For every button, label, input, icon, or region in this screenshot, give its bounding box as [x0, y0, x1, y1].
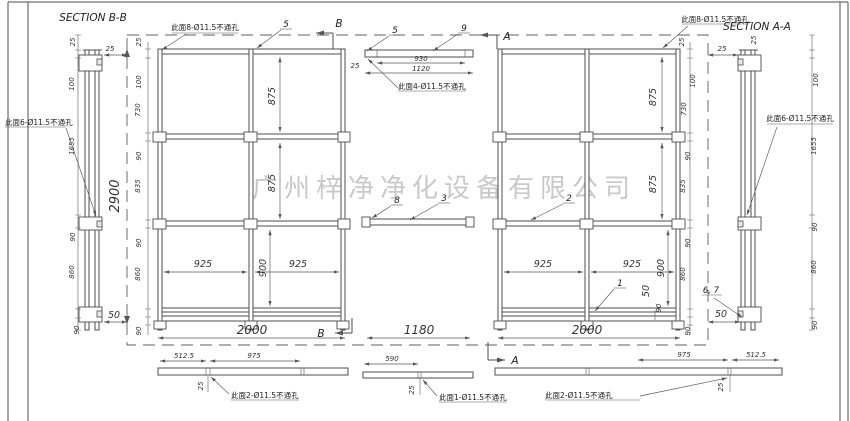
dim-strip-right-25: 25: [717, 382, 725, 391]
dim-2900-arrows: [124, 49, 130, 324]
dim-rf-100: 100: [689, 74, 697, 88]
dim-rf-row2: 875: [648, 175, 659, 193]
cad-drawing-sheet: 广州梓净净化设备有限公司 SECTION B-B 25 25 100 1655 …: [0, 0, 850, 421]
foot-block: [337, 321, 349, 329]
foot-block: [154, 321, 166, 329]
leader-label-bottomright-2holes: 此面2-Ø11.5不通孔: [545, 390, 613, 400]
mark-a-top: A: [502, 31, 510, 43]
dim-lf-25t: 25: [135, 37, 143, 46]
leader-line-topleft-8holes: [162, 34, 186, 50]
callout-9: 9: [461, 24, 467, 34]
joint-block: [153, 219, 166, 229]
dim-rf-25h: 25: [718, 45, 727, 53]
callout-3: 3: [441, 194, 447, 204]
dim-rf-width: 2000: [572, 323, 603, 337]
dim-lf-width: 2000: [237, 323, 268, 337]
callout-8: 8: [394, 196, 400, 206]
dim-sec-b-25-horiz: 25: [106, 45, 115, 53]
dim-strip-mid-25: 25: [408, 385, 416, 394]
joint-block: [244, 219, 257, 229]
bottom-strip-right: [495, 368, 782, 375]
dim-lf-835: 835: [134, 179, 142, 193]
dim-sec-b-90b: 90: [73, 325, 81, 334]
dim-strip-left-5125: 512.5: [174, 352, 195, 360]
callout-6-7: 6, 7: [703, 286, 720, 296]
rf-column-mid: [585, 49, 589, 330]
callout-2-leader: [531, 204, 563, 220]
dim-strip-mid-590: 590: [385, 355, 399, 363]
leader-line-bottommid-1hole: [423, 380, 437, 396]
callout-5-mid: 5: [392, 26, 398, 36]
dim-mid-25: 25: [351, 62, 360, 70]
joint-block: [580, 219, 593, 229]
callout-5-mid-leader: [367, 36, 389, 51]
dim-930: 930: [414, 55, 428, 63]
bottom-strip-left: [158, 368, 348, 375]
dim-1120: 1120: [412, 65, 430, 73]
dim-sec-b-50: 50: [108, 310, 120, 321]
dim-sa-90b: 90: [811, 320, 819, 329]
lf-column-mid: [249, 49, 253, 330]
bottom-strips: 512.5 975 25 此面2-Ø11.5不通孔 590 25 此面1-Ø11…: [158, 351, 782, 402]
cross-bar-end-left: [362, 217, 370, 227]
leader-line-bottomright-2holes: [640, 378, 727, 396]
dim-sa-860: 860: [810, 260, 818, 274]
joint-block: [338, 132, 350, 142]
dim-lf-row2: 875: [267, 174, 278, 192]
foot-block: [672, 321, 684, 329]
mark-a-bottom: A: [510, 355, 518, 367]
dim-sa-50: 50: [715, 309, 727, 320]
dim-strip-right-975: 975: [677, 351, 691, 359]
dim-rf-90a: 90: [684, 151, 692, 160]
joint-block: [493, 219, 506, 229]
section-aa-title: SECTION A-A: [723, 21, 791, 33]
leader-line-bottomleft-2holes: [211, 377, 229, 394]
lf-column-left: [158, 49, 162, 330]
dim-lf-90b: 90: [135, 238, 143, 247]
dim-rf-90d: 90: [655, 303, 663, 312]
dim-lf-100: 100: [135, 75, 143, 89]
dim-strip-left-25: 25: [197, 381, 205, 390]
section-aa-view: SECTION A-A 25 100 1655 90 860 90 50 6, …: [702, 21, 834, 330]
callout-8-leader: [372, 206, 391, 218]
dim-1180: 1180: [404, 323, 435, 337]
dim-rf-90c: 90: [684, 326, 692, 335]
dim-lf-730: 730: [134, 103, 142, 117]
cross-bar: [363, 219, 473, 225]
dim-sec-b-25-top: 25: [69, 37, 77, 46]
dim-sec-b-860: 860: [68, 265, 76, 279]
dim-strip-right-5125: 512.5: [746, 351, 767, 359]
joint-block: [672, 219, 685, 229]
foot-block: [494, 321, 506, 329]
lf-column-right: [341, 49, 345, 330]
callout-9-leader: [433, 34, 458, 51]
leader-label-bottommid-1hole: 此面1-Ø11.5不通孔: [439, 392, 507, 402]
joint-block: [244, 132, 257, 142]
section-aa-bar-left: [741, 50, 745, 330]
cross-bar-end-right: [466, 217, 474, 227]
dim-sa-100: 100: [812, 73, 820, 87]
hole-mark: [738, 59, 743, 65]
leader-line-mid-4holes: [368, 59, 398, 88]
leader-label-bottomleft-2holes: 此面2-Ø11.5不通孔: [231, 390, 299, 400]
dim-strip-left-975: 975: [247, 352, 261, 360]
dim-lf-90a: 90: [135, 151, 143, 160]
dim-lf-col2: 925: [289, 259, 307, 270]
engineering-drawing: 广州梓净净化设备有限公司 SECTION B-B 25 25 100 1655 …: [0, 0, 850, 421]
dim-sa-1655: 1655: [810, 137, 818, 155]
dim-sec-b-100: 100: [68, 77, 76, 91]
dim-lf-row3: 900: [258, 259, 269, 277]
dim-rf-col1: 925: [534, 259, 552, 270]
joint-block: [338, 219, 350, 229]
dim-2900: 2900: [108, 179, 123, 212]
dim-sec-b-90a: 90: [69, 232, 77, 241]
mark-b-bottom: B: [317, 328, 324, 340]
joint-block: [153, 132, 166, 142]
dim-rf-25t: 25: [678, 37, 686, 46]
joint-block: [672, 132, 685, 142]
dim-rf-row3: 900: [656, 259, 667, 277]
mark-b-top: B: [335, 18, 342, 30]
callout-5-left-leader: [257, 30, 281, 48]
hole-mark: [97, 59, 102, 65]
leader-line-left-6holes: [66, 128, 96, 216]
dim-rf-row1: 875: [648, 88, 659, 106]
leader-label-mid-4holes: 此面4-Ø11.5不通孔: [398, 81, 466, 91]
hole-mark: [97, 221, 102, 227]
leader-label-left-6holes: 此面6-Ø11.5不通孔: [5, 117, 73, 127]
section-aa-bar-right: [751, 50, 755, 330]
dim-lf-row1: 875: [267, 87, 278, 105]
dim-rf-col2: 925: [623, 259, 641, 270]
hole-mark: [738, 221, 743, 227]
callout-2: 2: [566, 194, 572, 204]
dim-rf-835: 835: [679, 179, 687, 193]
dim-rf-730: 730: [680, 102, 688, 116]
callout-3-leader: [410, 204, 438, 220]
dim-rf-50: 50: [641, 285, 652, 297]
joint-block: [580, 132, 593, 142]
leader-label-topleft-8holes: 此面8-Ø11.5不通孔: [171, 22, 239, 32]
joint-block: [493, 132, 506, 142]
hole-mark: [97, 311, 102, 317]
dim-rf-860: 860: [679, 267, 687, 281]
dim-lf-90c: 90: [135, 326, 143, 335]
section-bb-bar-right: [95, 50, 99, 330]
leader-label-right-6holes: 此面6-Ø11.5不通孔: [766, 113, 834, 123]
rf-column-left: [498, 49, 502, 330]
lf-dim-chain: [145, 42, 151, 335]
dim-sa-90a: 90: [811, 222, 819, 231]
dim-lf-col1: 925: [194, 259, 212, 270]
callout-5-left: 5: [283, 20, 289, 30]
section-bb-view: SECTION B-B 25 25 100 1655 90 860 90 50 …: [5, 12, 127, 334]
dim-sa-25t: 25: [750, 35, 758, 44]
callout-1: 1: [617, 279, 623, 289]
dim-rf-90b: 90: [684, 238, 692, 247]
dim-lf-860: 860: [134, 267, 142, 281]
section-bb-title: SECTION B-B: [59, 12, 127, 24]
